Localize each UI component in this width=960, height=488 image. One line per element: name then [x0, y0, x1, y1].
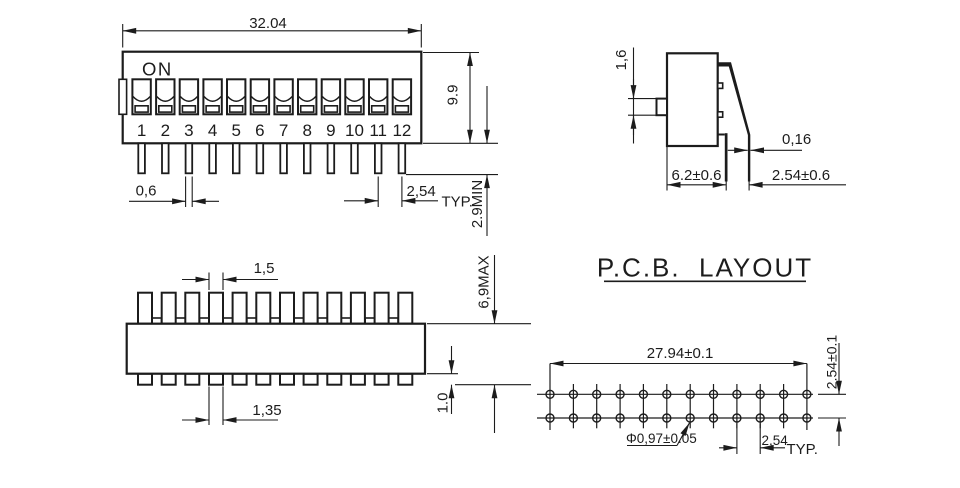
actuator-tab: [185, 293, 199, 324]
straight-terminal: [725, 133, 728, 181]
position-number: 9: [326, 121, 335, 140]
position-number: 12: [392, 121, 411, 140]
dim-pin-thickness: 0,6: [129, 177, 219, 208]
switch-slot: [322, 79, 340, 114]
actuator-tab: [256, 293, 270, 324]
side-view: 1,6 0,16 6.2±0.6 2.54±0.6: [613, 48, 846, 191]
actuator-tab: [233, 293, 247, 324]
actuator-tab: [327, 293, 341, 324]
pin: [304, 143, 311, 173]
pin: [257, 143, 264, 173]
dim-pin-pitch: 2,54 TYP.: [344, 177, 473, 211]
switch-slot: [345, 79, 363, 114]
body-notch: [718, 83, 723, 88]
pin: [399, 143, 406, 173]
switch-slot: [274, 79, 292, 114]
terminal-tabs: [138, 374, 412, 385]
pin: [351, 143, 358, 173]
dip-switch-drawing: ON 1 2 3 4 5 6 7 8 9 10 11: [0, 0, 960, 488]
position-number: 3: [184, 121, 193, 140]
svg-text:0,6: 0,6: [136, 182, 157, 199]
pin: [328, 143, 335, 173]
switch-body-side: [667, 53, 718, 146]
top-view: 1,5 1,35 6,9MAX 1.0: [127, 255, 531, 433]
svg-text:9.9: 9.9: [445, 85, 462, 106]
terminal-tab: [138, 374, 152, 385]
terminal-tab: [280, 374, 294, 385]
svg-text:2.54±0.1: 2.54±0.1: [824, 335, 840, 390]
pcb-title: P.C.B. LAYOUT: [597, 253, 813, 283]
actuator-side: [657, 99, 668, 116]
hole-pair: [639, 384, 647, 428]
position-number: 5: [231, 121, 240, 140]
actuator-tab: [304, 293, 318, 324]
position-number: 6: [255, 121, 264, 140]
hole-pair: [710, 384, 718, 428]
terminal-tab: [375, 374, 389, 385]
switch-slot: [251, 79, 269, 114]
terminal-tab: [233, 374, 247, 385]
position-number: 1: [137, 121, 146, 140]
hole-pair: [616, 384, 624, 428]
hole-pair: [733, 384, 741, 428]
actuator-tab: [162, 293, 176, 324]
terminal-tab: [185, 374, 199, 385]
svg-text:2,54: 2,54: [407, 183, 436, 200]
pin: [375, 143, 382, 173]
hole-pair: [780, 384, 788, 428]
svg-text:TYP.: TYP.: [442, 194, 473, 211]
svg-text:6.2±0.6: 6.2±0.6: [672, 167, 722, 184]
pin: [209, 143, 216, 173]
switch-slot: [203, 79, 221, 114]
position-number: 2: [161, 121, 170, 140]
svg-text:2,54: 2,54: [762, 433, 789, 448]
switch-slot: [180, 79, 198, 114]
switch-slot: [369, 79, 387, 114]
actuator-tab: [398, 293, 412, 324]
switch-slot: [156, 79, 174, 114]
terminal-tab: [398, 374, 412, 385]
svg-text:1.0: 1.0: [435, 393, 452, 414]
dim-actuator-width: 1,5: [182, 260, 278, 290]
actuator-tab: [375, 293, 389, 324]
pin: [233, 143, 240, 173]
svg-text:1,6: 1,6: [613, 50, 630, 71]
switch-slot: [132, 79, 150, 114]
switch-slot: [298, 79, 316, 114]
dim-overall-width: 32.04: [123, 15, 422, 47]
svg-text:27.94±0.1: 27.94±0.1: [647, 345, 714, 362]
dim-terminal-height: 1.0: [427, 346, 458, 414]
actuator-tabs: [138, 293, 412, 324]
dim-actuator-height: 1,6: [613, 48, 657, 144]
switch-slot: [227, 79, 245, 114]
hole-pair: [756, 384, 764, 428]
svg-text:1,35: 1,35: [252, 402, 281, 419]
hole-pair: [686, 384, 694, 428]
svg-text:2.54±0.6: 2.54±0.6: [772, 167, 830, 184]
dim-hole-span: 27.94±0.1: [550, 345, 807, 364]
svg-text:0,16: 0,16: [782, 131, 811, 148]
hole-grid: [546, 364, 811, 431]
pin: [138, 143, 145, 173]
pin: [162, 143, 169, 173]
svg-text:32.04: 32.04: [249, 15, 287, 32]
front-view: ON 1 2 3 4 5 6 7 8 9 10 11: [119, 15, 498, 236]
front-pins: [138, 143, 405, 173]
actuator-tab: [280, 293, 294, 324]
hole-pair: [593, 384, 601, 428]
dim-col-pitch: 2,54 TYP.: [719, 424, 818, 459]
hole-pair: [663, 384, 671, 428]
position-number: 10: [345, 121, 364, 140]
body-edge-notch: [119, 79, 127, 114]
pin: [280, 143, 287, 173]
svg-text:Φ0,97±0.05: Φ0,97±0.05: [626, 431, 697, 446]
switch-slot: [393, 79, 411, 114]
terminal-tab: [304, 374, 318, 385]
position-number: 7: [279, 121, 288, 140]
svg-text:6,9MAX: 6,9MAX: [476, 255, 493, 308]
position-number: 4: [208, 121, 217, 140]
switch-body-top: [127, 324, 425, 374]
dim-terminal-thickness: 0,16: [728, 131, 811, 150]
position-number: 8: [302, 121, 311, 140]
terminal-tab: [351, 374, 365, 385]
pcb-layout: P.C.B. LAYOUT 27.94±0.1: [537, 253, 846, 459]
hole-pair: [569, 384, 577, 428]
dim-terminal-width: 1,35: [182, 387, 282, 426]
drawing-canvas: ON 1 2 3 4 5 6 7 8 9 10 11: [0, 0, 960, 488]
position-number: 11: [369, 121, 387, 140]
bent-terminal: [718, 62, 751, 181]
terminal-tab: [162, 374, 176, 385]
terminal-tab: [209, 374, 223, 385]
terminal-tab: [256, 374, 270, 385]
on-label: ON: [142, 59, 173, 80]
body-notch: [718, 112, 723, 117]
actuator-tab: [138, 293, 152, 324]
terminal-tab: [327, 374, 341, 385]
pin: [186, 143, 193, 173]
svg-text:1,5: 1,5: [254, 260, 275, 277]
dim-hole-diameter: Φ0,97±0.05: [626, 423, 697, 446]
actuator-tab: [209, 293, 223, 324]
actuator-tab: [351, 293, 365, 324]
dim-row-pitch: 2.54±0.1: [818, 335, 846, 446]
svg-text:TYP.: TYP.: [787, 441, 818, 458]
dim-depth-and-spacing: 6.2±0.6 2.54±0.6: [667, 146, 846, 191]
